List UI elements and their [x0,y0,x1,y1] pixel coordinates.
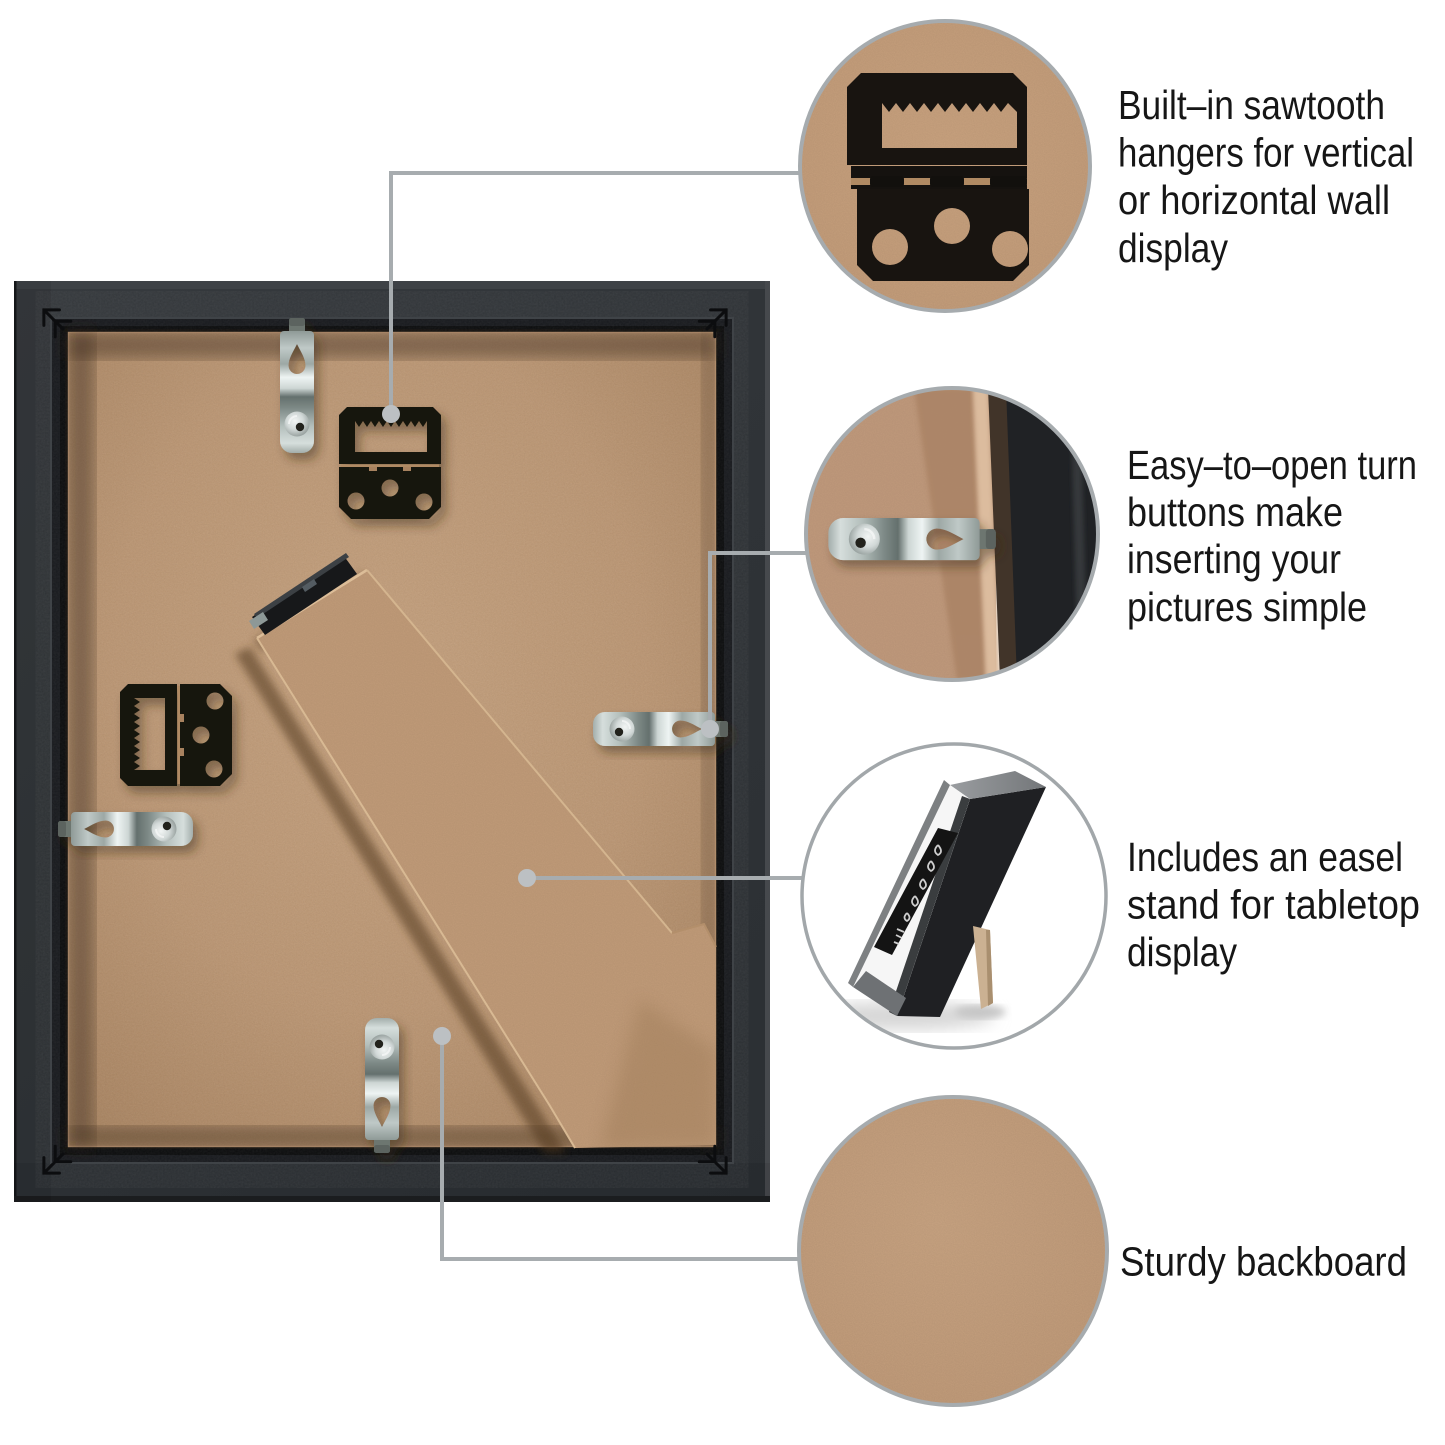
svg-text:Sturdy backboard: Sturdy backboard [1120,1239,1407,1285]
svg-text:Built–in sawtooth: Built–in sawtooth [1118,82,1385,128]
svg-text:or horizontal wall: or horizontal wall [1118,177,1390,223]
svg-text:stand for tabletop: stand for tabletop [1127,882,1420,928]
svg-text:display: display [1118,225,1228,271]
svg-text:hangers for vertical: hangers for vertical [1118,130,1414,176]
svg-text:Easy–to–open turn: Easy–to–open turn [1127,442,1417,488]
svg-text:display: display [1127,929,1237,975]
svg-text:Includes an easel: Includes an easel [1127,834,1403,880]
svg-text:inserting your: inserting your [1127,536,1341,582]
svg-text:buttons make: buttons make [1127,489,1343,535]
svg-text:pictures simple: pictures simple [1127,584,1367,630]
